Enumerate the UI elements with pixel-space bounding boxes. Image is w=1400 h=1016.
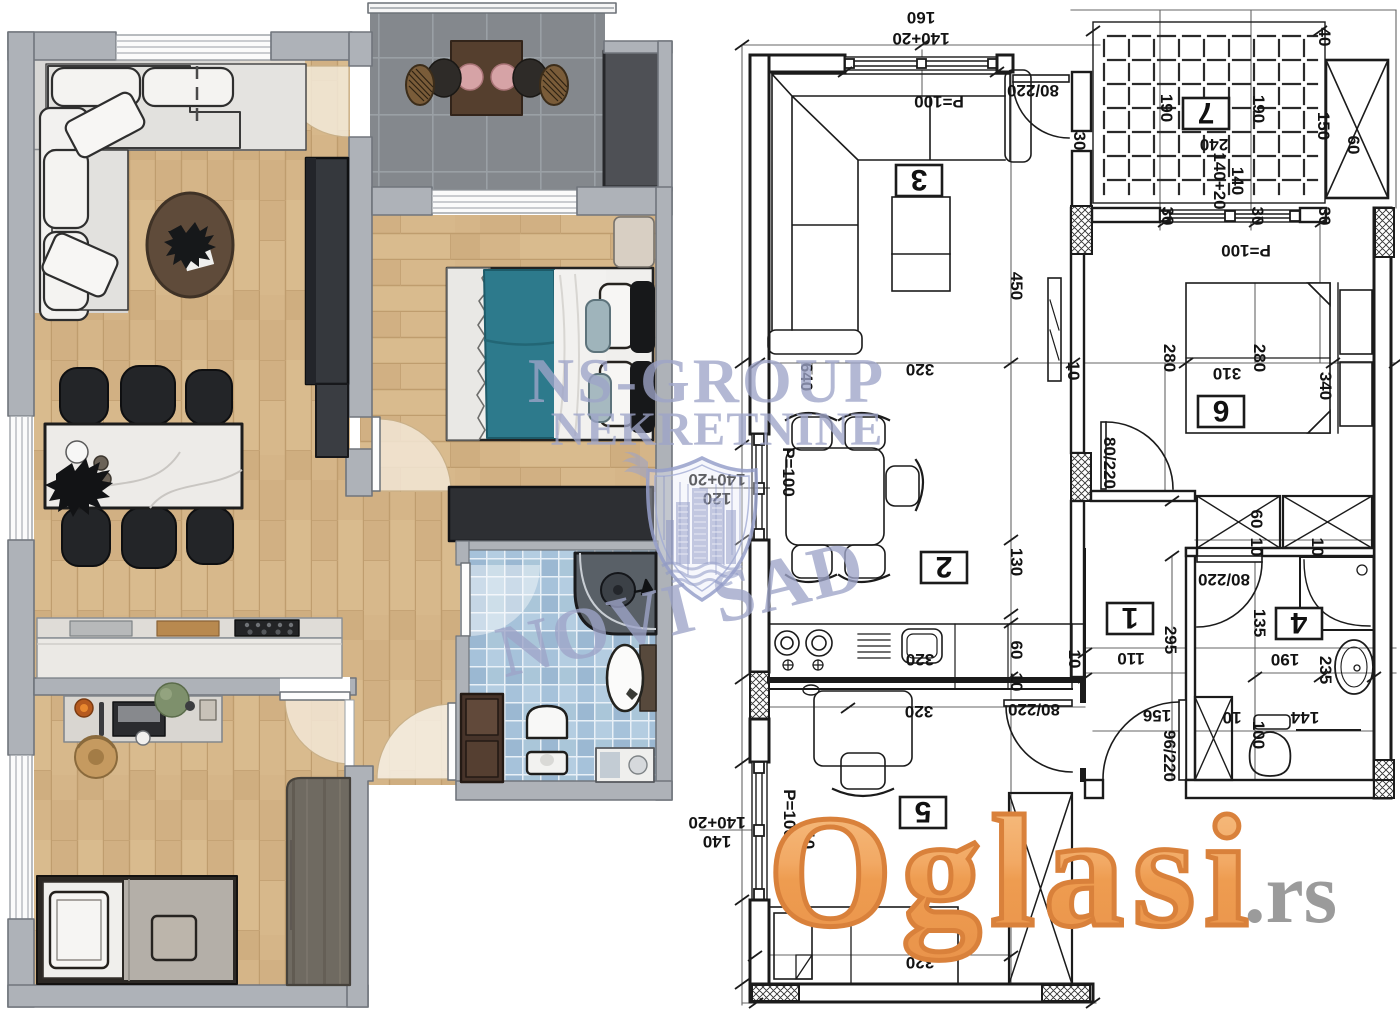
svg-text:30: 30 <box>1248 207 1267 226</box>
svg-text:295: 295 <box>1161 626 1180 654</box>
svg-text:190: 190 <box>1249 95 1268 123</box>
svg-text:144: 144 <box>1290 708 1319 727</box>
svg-text:320: 320 <box>906 650 934 669</box>
svg-text:P=100: P=100 <box>1221 241 1271 260</box>
svg-text:10: 10 <box>1064 362 1083 381</box>
svg-text:80/220: 80/220 <box>1198 570 1250 589</box>
svg-text:140: 140 <box>1228 167 1247 195</box>
svg-text:156: 156 <box>1143 706 1171 725</box>
svg-text:60: 60 <box>1007 641 1026 660</box>
svg-text:140+20: 140+20 <box>1210 152 1229 209</box>
svg-text:340: 340 <box>1316 372 1335 400</box>
svg-text:310: 310 <box>1213 364 1241 383</box>
svg-text:130: 130 <box>1007 548 1026 576</box>
svg-text:450: 450 <box>1007 272 1026 300</box>
svg-text:80/220: 80/220 <box>1100 437 1119 489</box>
svg-text:190: 190 <box>1271 650 1299 669</box>
svg-text:30: 30 <box>1158 207 1177 226</box>
svg-text:235: 235 <box>1316 656 1335 684</box>
svg-text:240: 240 <box>1200 135 1228 154</box>
svg-text:80/220: 80/220 <box>1008 700 1060 719</box>
svg-text:Oglasi: Oglasi <box>768 782 1258 961</box>
svg-text:160: 160 <box>907 8 935 27</box>
svg-text:110: 110 <box>1117 649 1144 668</box>
svg-text:10: 10 <box>1065 650 1084 669</box>
svg-text:P=100: P=100 <box>914 92 964 111</box>
svg-text:60: 60 <box>1344 136 1363 155</box>
svg-text:2: 2 <box>936 550 953 583</box>
svg-text:6: 6 <box>1213 394 1230 427</box>
svg-text:190: 190 <box>1157 94 1176 122</box>
svg-text:80/220: 80/220 <box>1007 81 1059 100</box>
svg-text:10: 10 <box>1007 673 1026 692</box>
svg-text:.rs: .rs <box>1244 845 1337 941</box>
svg-text:NEKRETNINE: NEKRETNINE <box>551 403 884 456</box>
svg-text:30: 30 <box>1070 132 1089 151</box>
svg-text:10: 10 <box>1223 708 1242 727</box>
svg-text:10: 10 <box>1308 538 1327 557</box>
svg-text:320: 320 <box>905 702 933 721</box>
svg-text:150: 150 <box>1314 112 1333 140</box>
svg-text:10: 10 <box>1247 538 1266 557</box>
svg-text:1: 1 <box>1122 601 1139 634</box>
svg-text:320: 320 <box>906 360 934 379</box>
svg-text:3: 3 <box>911 163 928 196</box>
svg-text:4: 4 <box>1290 606 1307 639</box>
svg-text:140+20: 140+20 <box>688 813 745 832</box>
svg-text:7: 7 <box>1198 96 1215 129</box>
svg-text:40: 40 <box>1315 28 1334 47</box>
svg-text:140: 140 <box>703 832 731 851</box>
svg-text:280: 280 <box>1160 344 1179 372</box>
svg-text:30: 30 <box>1315 207 1334 226</box>
svg-text:280: 280 <box>1250 344 1269 372</box>
svg-text:100: 100 <box>1249 721 1268 749</box>
svg-text:60: 60 <box>1247 510 1266 529</box>
svg-text:135: 135 <box>1250 609 1269 637</box>
svg-text:96/220: 96/220 <box>1160 730 1179 782</box>
